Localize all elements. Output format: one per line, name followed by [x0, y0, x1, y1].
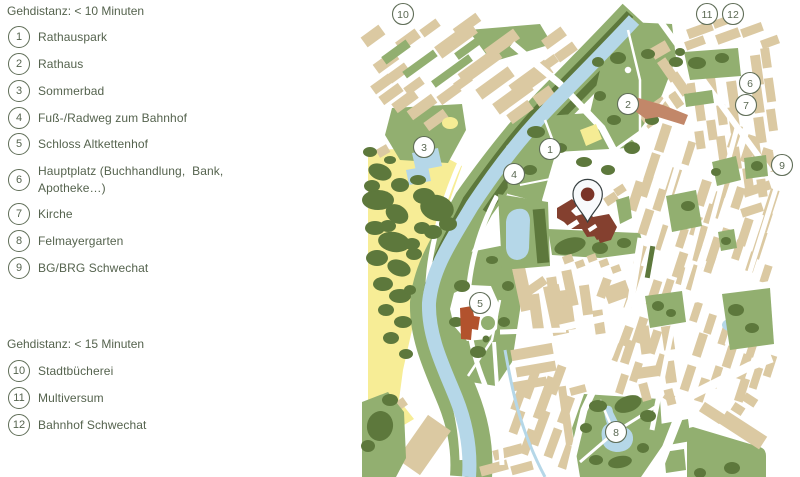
svg-text:7: 7 — [743, 100, 749, 112]
svg-text:10: 10 — [397, 9, 409, 21]
svg-text:11: 11 — [702, 9, 713, 21]
svg-text:9: 9 — [779, 160, 785, 172]
svg-text:3: 3 — [421, 142, 427, 154]
svg-text:2: 2 — [625, 99, 631, 111]
svg-text:12: 12 — [727, 9, 739, 21]
svg-text:4: 4 — [511, 169, 517, 181]
svg-text:6: 6 — [747, 78, 753, 90]
svg-text:8: 8 — [613, 427, 619, 439]
svg-text:1: 1 — [547, 144, 553, 156]
svg-text:5: 5 — [477, 298, 483, 310]
